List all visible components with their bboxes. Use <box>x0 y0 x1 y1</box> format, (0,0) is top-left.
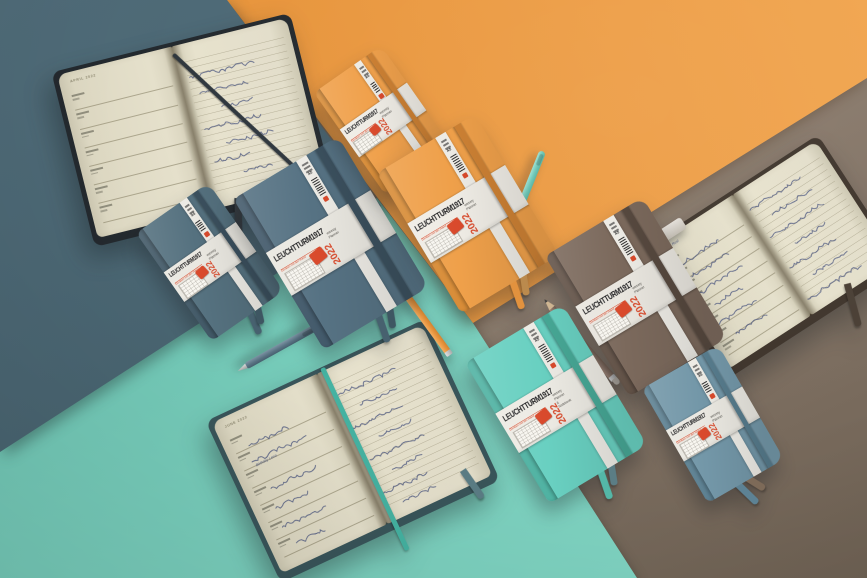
page-header: APRIL 2022 <box>70 74 97 84</box>
code-mark <box>609 221 615 226</box>
paper-wrap-band: LEUCHTTURM1917 Denken mit der Hand 2022 … <box>405 164 530 264</box>
year-text: 2022 <box>618 278 648 318</box>
code-mark <box>445 145 451 150</box>
brand-slogan: Denken mit der Hand <box>509 407 547 432</box>
code-mark <box>306 168 313 173</box>
brand-slogan: Denken mit der Hand <box>589 300 627 325</box>
day-label-mark <box>87 153 94 156</box>
calendar-grid-graphic <box>353 128 382 155</box>
red-logo-chip <box>696 426 711 440</box>
barcode <box>310 177 326 196</box>
paper-wrap-band: LEUCHTTURM1917 Denken mit der Hand 2022 … <box>573 247 698 347</box>
code-mark <box>364 72 369 76</box>
size-code: A5 <box>614 230 622 237</box>
calendar-grid-graphic <box>284 255 326 291</box>
day-label-mark <box>78 116 85 119</box>
year-text: 2022 <box>369 106 394 136</box>
day-label-mark <box>72 92 85 97</box>
day-label-mark <box>101 209 108 212</box>
red-code-mark <box>629 255 636 262</box>
page-header: JUNE 2022 <box>225 415 249 429</box>
barcode <box>538 344 553 363</box>
day-label-mark <box>232 440 239 444</box>
code-mark <box>361 69 366 73</box>
year-text: 2022 <box>699 409 723 442</box>
variant-text: Weekly Planner <box>206 250 218 262</box>
paper-wrap-band: LEUCHTTURM1917 Denken mit der Hand 2022 … <box>338 81 428 158</box>
notebook-spine <box>136 229 218 342</box>
code-mark <box>184 204 189 208</box>
product-photo-scene: APRIL 2022 Café Rosi <box>0 0 867 578</box>
brand-slogan: Denken mit der Hand <box>676 426 706 445</box>
code-mark <box>187 207 192 211</box>
code-mark <box>189 210 194 214</box>
variant-text: Weekly Planner <box>710 412 722 424</box>
size-code: A5 <box>306 170 314 177</box>
notebook-spine <box>642 385 715 503</box>
paper-wrap-band: LEUCHTTURM1917 Denken mit der Hand 2022 … <box>664 385 762 463</box>
size-code: A6 <box>697 373 703 379</box>
paper-wrap-band: LEUCHTTURM1917 Denken mit der Hand 2022 … <box>162 221 258 304</box>
red-logo-chip <box>535 407 554 425</box>
code-mark <box>304 165 311 170</box>
brand-slogan: Denken mit der Hand <box>421 217 459 242</box>
day-label-mark <box>280 543 287 547</box>
year-text: 2022 <box>195 247 221 279</box>
brand-slogan: Denken mit der Hand <box>280 246 321 273</box>
code-mark <box>441 138 447 143</box>
day-label-mark <box>100 204 113 209</box>
code-mark <box>443 142 449 147</box>
barcode <box>369 80 380 93</box>
red-logo-chip <box>194 265 209 279</box>
brand-text: LEUCHTTURM1917 <box>343 108 379 136</box>
year-text: 2022 <box>312 223 344 266</box>
year-text: 2022 <box>538 385 568 425</box>
calendar-grid-graphic <box>512 415 551 449</box>
barcode-strip: A6 <box>688 358 762 477</box>
day-label-mark <box>240 458 247 462</box>
red-logo-chip <box>368 123 382 137</box>
variant-text: Weekly Planner & Notebook <box>552 389 570 409</box>
day-label-mark <box>86 148 99 153</box>
calendar-grid-graphic <box>178 271 209 299</box>
brand-text: LEUCHTTURM1917 <box>501 386 555 424</box>
code-mark <box>692 364 697 368</box>
barcode <box>618 237 633 256</box>
brand-text: LEUCHTTURM1917 <box>272 226 326 264</box>
day-label-mark <box>256 492 263 496</box>
variant-text: Weekly Planner <box>464 199 478 212</box>
code-mark <box>694 368 699 372</box>
day-label-mark <box>91 167 104 172</box>
code-mark <box>531 332 537 337</box>
red-logo-chip <box>308 246 328 266</box>
brand-text: LEUCHTTURM1917 <box>670 412 707 438</box>
red-code-mark <box>378 93 385 100</box>
code-mark <box>359 66 364 70</box>
size-code: A6 <box>365 74 371 80</box>
paper-wrap-band: LEUCHTTURM1917 Denken mit der Hand 2022 … <box>493 354 618 454</box>
brand-text: LEUCHTTURM1917 <box>168 251 204 279</box>
barcode <box>701 380 712 393</box>
code-mark <box>696 371 701 375</box>
code-mark <box>611 225 617 230</box>
day-label-mark <box>264 509 271 513</box>
size-code: A5 <box>534 337 542 344</box>
code-mark <box>529 328 535 333</box>
code-mark <box>613 228 619 233</box>
day-label-mark <box>96 191 103 194</box>
day-label-mark <box>272 526 279 530</box>
size-code: A6 <box>190 212 196 218</box>
year-text: 2022 <box>450 195 480 235</box>
paper-wrap-band: LEUCHTTURM1917 Denken mit der Hand 2022 … <box>264 189 398 297</box>
code-mark <box>533 335 539 340</box>
red-code-mark <box>322 195 329 202</box>
red-logo-chip <box>447 217 466 235</box>
barcode <box>450 154 465 173</box>
brand-slogan: Denken mit der Hand <box>175 265 204 287</box>
red-code-mark <box>549 362 556 369</box>
red-logo-chip <box>615 300 634 318</box>
day-label-mark <box>77 111 90 116</box>
variant-text: Weekly Planner <box>326 227 341 240</box>
red-code-mark <box>461 172 468 179</box>
day-label-mark <box>248 475 255 479</box>
barcode <box>194 218 205 231</box>
elastic-band <box>452 120 546 270</box>
day-label-mark <box>91 172 98 175</box>
red-code-mark <box>203 231 210 238</box>
calendar-grid-graphic <box>424 225 463 259</box>
day-label-mark <box>73 97 80 100</box>
day-label-mark <box>95 185 108 190</box>
brand-text: LEUCHTTURM1917 <box>413 196 467 234</box>
day-label-mark <box>82 135 89 138</box>
brand-text: LEUCHTTURM1917 <box>581 279 635 317</box>
barcode-strip: A5 <box>436 132 530 278</box>
code-mark <box>302 162 309 167</box>
calendar-grid-graphic <box>592 308 631 342</box>
variant-text: Weekly Planner <box>379 109 390 121</box>
brand-slogan: Denken mit der Hand <box>350 122 377 142</box>
calendar-grid-graphic <box>679 432 710 459</box>
size-code: A5 <box>446 147 454 154</box>
red-code-mark <box>709 393 716 400</box>
day-label-mark <box>81 129 94 134</box>
variant-text: Weekly Planner <box>632 282 646 295</box>
